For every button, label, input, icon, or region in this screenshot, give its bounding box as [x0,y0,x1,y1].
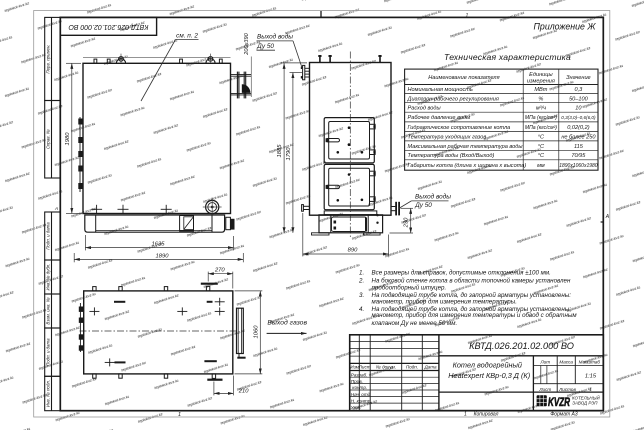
svg-text:Температура уходящих газов: Температура уходящих газов [408,134,487,140]
svg-text:Лист: Лист [538,387,551,392]
svg-text:Инв. № дубл.: Инв. № дубл. [46,263,51,290]
svg-text:230: 230 [404,217,410,228]
svg-text:Расход воды: Расход воды [408,106,441,112]
svg-text:Пров.: Пров. [351,379,363,384]
svg-text:МПа (кгс/см²): МПа (кгс/см²) [525,125,557,131]
svg-text:Значение: Значение [566,75,591,81]
svg-text:1: 1 [464,412,467,418]
svg-text:1:15: 1:15 [585,374,597,380]
svg-text:измерения: измерения [527,79,555,85]
svg-text:1: 1 [466,13,469,19]
svg-text:Heatexpert КВр-0,3 Д (К): Heatexpert КВр-0,3 Д (К) [448,371,530,380]
svg-text:KVZR: KVZR [548,395,570,409]
svg-text:1790: 1790 [286,147,292,161]
svg-text:Техническая характеристика: Техническая характеристика [444,52,571,62]
svg-text:Ду 50: Ду 50 [414,202,432,209]
svg-text:Ду 50: Ду 50 [256,43,274,50]
svg-text:Гидравлическое сопротивление к: Гидравлическое сопротивление котла [408,125,511,131]
svg-text:клапаном Ду не менее 50 мм.: клапаном Ду не менее 50 мм. [372,320,458,327]
svg-text:4.: 4. [359,306,364,313]
svg-text:На боковой стенке котла в обла: На боковой стенке котла в области топочн… [372,278,571,285]
svg-text:МПа (кгс/см²): МПа (кгс/см²) [525,115,557,121]
svg-text:0,3(3,0)–0,6(6,0): 0,3(3,0)–0,6(6,0) [561,115,596,120]
svg-text:0,3: 0,3 [575,87,584,93]
svg-text:ЗАВОД РЭП: ЗАВОД РЭП [572,401,598,406]
svg-text:1: 1 [589,387,592,392]
svg-text:м³/ч: м³/ч [536,106,546,112]
svg-text:манометр, прибор для измерения: манометр, прибор для измерения температу… [372,312,578,319]
svg-text:Подп. и дата: Подп. и дата [46,338,51,366]
svg-text:Максимальная рабочая температу: Максимальная рабочая температура воды [408,144,523,150]
svg-text:Дата: Дата [423,364,437,369]
svg-text:1: 1 [178,412,181,418]
svg-text:2.: 2. [358,278,364,285]
svg-text:Все размеры для справок, допус: Все размеры для справок, допустимые откл… [372,269,551,276]
svg-text:Котел водогрейный: Котел водогрейный [453,360,522,369]
svg-text:270: 270 [214,268,225,274]
svg-text:КВТД.026.201.02.000 ВО: КВТД.026.201.02.000 ВО [469,341,574,351]
svg-text:МВт: МВт [534,87,547,93]
svg-text:50–100: 50–100 [569,96,589,102]
svg-text:890: 890 [348,248,358,254]
svg-text:см. п. 2: см. п. 2 [176,33,198,40]
svg-text:Наименование показателя: Наименование показателя [428,75,499,81]
svg-text:Лист: Лист [358,364,371,369]
svg-text:Копировал: Копировал [474,412,499,418]
svg-text:КОТЕЛЬНЫЙ: КОТЕЛЬНЫЙ [572,395,600,400]
svg-text:Н. контр.: Н. контр. [351,398,372,403]
svg-text:Единицы: Единицы [529,72,552,78]
svg-text:210: 210 [238,388,249,394]
svg-text:КВТД.026.201.02.000 ВО: КВТД.026.201.02.000 ВО [68,23,148,30]
svg-text:115: 115 [574,144,584,150]
svg-text:°С: °С [538,153,545,159]
svg-text:пробоотборный штуцер.: пробоотборный штуцер. [372,285,447,292]
svg-text:Диапазон рабочего регулировани: Диапазон рабочего регулирования [407,96,499,102]
svg-text:Номинальная мощность: Номинальная мощность [408,87,473,93]
svg-text:Температура воды (Вход/Выход): Температура воды (Вход/Выход) [408,153,495,159]
svg-text:10: 10 [575,106,582,112]
svg-text:1060: 1060 [253,325,259,339]
svg-text:1890: 1890 [156,253,170,259]
svg-text:А: А [54,206,58,211]
svg-text:°С: °С [538,134,545,140]
svg-text:°С: °С [538,144,545,150]
svg-text:контр.: контр. [352,385,367,390]
svg-text:Листов: Листов [558,387,576,392]
svg-text:1635: 1635 [152,242,166,248]
svg-text:200х390: 200х390 [244,32,250,55]
svg-text:Нач. отд: Нач. отд [351,392,371,397]
svg-text:Справ. №: Справ. № [46,129,51,149]
svg-text:не более 250: не более 250 [561,134,596,140]
svg-text:Инв. № подл.: Инв. № подл. [46,380,51,407]
svg-text:Лит: Лит [540,360,551,365]
svg-text:1885: 1885 [277,144,283,158]
svg-text:манометр, прибор для измерения: манометр, прибор для измерения температу… [372,298,517,305]
svg-text:1890х1060х1980: 1890х1060х1980 [559,163,598,169]
svg-text:Выход воды: Выход воды [257,33,293,41]
svg-text:Выход воды: Выход воды [415,192,451,200]
svg-text:А: А [605,214,610,220]
svg-text:Приложение Ж: Приложение Ж [534,22,597,32]
svg-text:Утв.: Утв. [351,405,361,410]
svg-text:Разраб.: Разраб. [351,372,368,377]
svg-text:№ докум.: № докум. [376,364,396,369]
svg-text:70/95: 70/95 [571,153,586,159]
svg-text:Подп. и дата: Подп. и дата [46,222,51,250]
svg-text:Рабочее давление воды: Рабочее давление воды [408,115,471,121]
svg-text:1.: 1. [359,269,364,276]
svg-text:1980: 1980 [65,132,71,146]
svg-text:Габариты котла (длина х ширина: Габариты котла (длина х ширина х высота) [408,163,527,169]
svg-text:3.: 3. [359,292,364,299]
svg-text:Взам. инв. №: Взам. инв. № [46,297,51,324]
svg-text:%: % [538,96,543,102]
svg-text:Масса: Масса [559,360,573,365]
svg-text:Выход газов: Выход газов [267,318,307,326]
svg-text:Формат А3: Формат А3 [550,412,578,418]
svg-text:0,02(0,2): 0,02(0,2) [567,125,590,131]
svg-text:Перв. примен.: Перв. примен. [46,44,51,73]
svg-text:мм: мм [537,163,545,169]
svg-text:Подп.: Подп. [406,364,418,369]
svg-text:Масштаб: Масштаб [579,360,601,365]
